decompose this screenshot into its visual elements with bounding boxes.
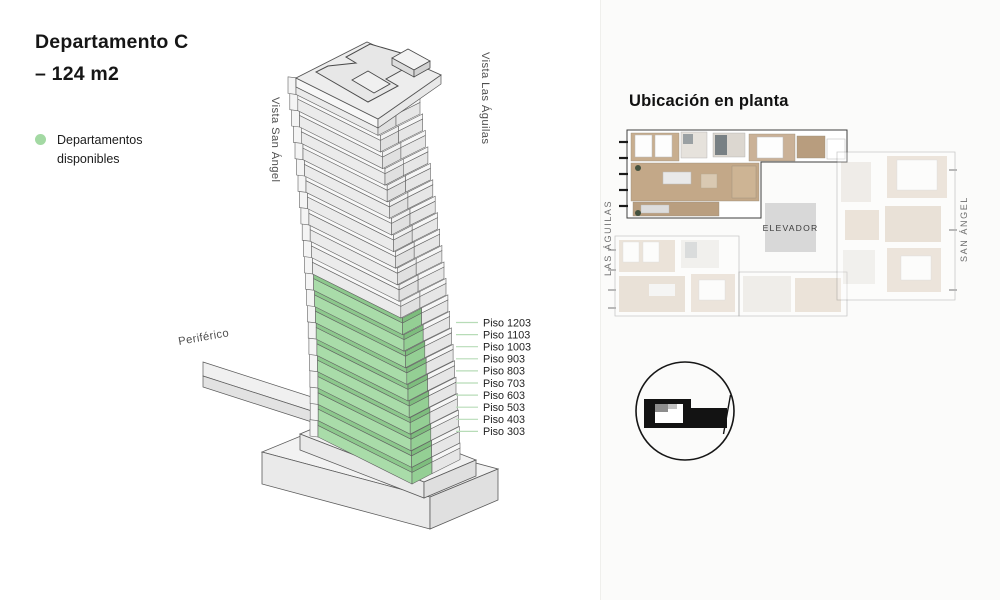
floor-label-piso-1203[interactable]: Piso 1203 xyxy=(483,317,531,329)
building-floor-piso-1003-endcap xyxy=(308,305,316,323)
elevator-label: ELEVADOR xyxy=(763,223,819,233)
unit-c-shade xyxy=(668,404,677,409)
plan-room xyxy=(843,250,875,284)
floor-label-piso-1103[interactable]: Piso 1103 xyxy=(483,329,530,341)
plan-street-right: SAN ÁNGEL xyxy=(959,192,969,262)
building-pane: Departamento C – 124 m2 Departamentos di… xyxy=(0,0,600,600)
plan-unit-faded-right xyxy=(837,152,957,300)
floor-label-piso-503[interactable]: Piso 503 xyxy=(483,402,525,414)
kitchen-island xyxy=(649,284,675,296)
shower xyxy=(715,135,727,155)
building-floor-upper-24-endcap xyxy=(288,77,296,95)
building-floor-piso-503-endcap xyxy=(310,387,318,405)
building-floor-piso-1103-endcap xyxy=(307,289,315,307)
floor-label-piso-303[interactable]: Piso 303 xyxy=(483,426,525,438)
floor-label-piso-1003[interactable]: Piso 1003 xyxy=(483,342,531,354)
building-floor-upper-19-endcap xyxy=(297,158,305,176)
shower xyxy=(685,242,697,258)
building-floor-upper-16-endcap xyxy=(301,207,309,225)
building-floor-upper-14-endcap xyxy=(303,240,311,258)
bed xyxy=(757,137,783,158)
building-floor-upper-21-endcap xyxy=(293,126,301,144)
table xyxy=(701,174,717,188)
building-floor-piso-303-endcap xyxy=(310,419,318,437)
plan-room xyxy=(795,278,841,312)
building-floor-upper-22-endcap xyxy=(292,109,300,127)
plan-heading: Ubicación en planta xyxy=(629,92,789,111)
floor-label-piso-403[interactable]: Piso 403 xyxy=(483,414,525,426)
plan-room xyxy=(743,276,791,312)
building-floor-upper-20-endcap xyxy=(295,142,303,160)
street-label-front: Periférico xyxy=(177,327,230,348)
plan-pane: Ubicación en planta xyxy=(600,0,1000,600)
floor-label-piso-803[interactable]: Piso 803 xyxy=(483,366,525,378)
building-floor-piso-603-endcap xyxy=(310,371,318,389)
plant-icon xyxy=(635,210,641,216)
building-illustration: Vista San Ángel Vista Las Águilas Perifé… xyxy=(0,0,600,600)
floor-label-piso-903[interactable]: Piso 903 xyxy=(483,354,525,366)
floor-label-piso-703[interactable]: Piso 703 xyxy=(483,378,525,390)
bed xyxy=(635,135,652,157)
apartment-viewer: Departamento C – 124 m2 Departamentos di… xyxy=(0,0,1000,600)
location-indicator xyxy=(625,352,750,472)
unit-c-shade xyxy=(655,404,668,412)
road-periferico xyxy=(203,362,318,424)
plan-unit-faded-bottom-center xyxy=(739,272,847,316)
bed xyxy=(643,242,659,262)
building-floor-piso-1203-endcap xyxy=(306,273,314,291)
plant-icon xyxy=(635,165,641,171)
kitchen-island xyxy=(663,172,691,184)
shower xyxy=(683,134,693,144)
plan-room xyxy=(845,210,879,240)
bed xyxy=(897,160,937,190)
building-floor-upper-18-endcap xyxy=(298,175,306,193)
plan-room xyxy=(885,206,941,242)
bed xyxy=(901,256,931,280)
building-floor-upper-15-endcap xyxy=(302,224,310,242)
plan-room xyxy=(732,166,756,198)
bed xyxy=(655,135,672,157)
street-label-left: Vista San Ángel xyxy=(269,97,282,182)
floor-callouts: Piso 1203Piso 1103Piso 1003Piso 903Piso … xyxy=(456,317,531,438)
bed xyxy=(699,280,725,300)
building-floor-piso-803-endcap xyxy=(309,338,317,356)
building-floor-upper-13-endcap xyxy=(305,256,313,274)
plan-room xyxy=(797,136,825,158)
street-label-right: Vista Las Águilas xyxy=(479,52,492,144)
building-floor-upper-23-endcap xyxy=(290,93,298,111)
plan-room xyxy=(841,162,871,202)
building-floor-piso-903-endcap xyxy=(308,322,316,340)
floor-label-piso-603[interactable]: Piso 603 xyxy=(483,390,525,402)
sofa xyxy=(641,205,669,213)
floorplan: ELEVADOR xyxy=(601,120,1000,335)
building-floor-piso-703-endcap xyxy=(310,354,318,372)
plan-street-left: LAS ÁGUILAS xyxy=(603,196,613,276)
bed xyxy=(623,242,639,262)
plan-unit-faded-bottom-left xyxy=(608,236,739,316)
building-floor-upper-17-endcap xyxy=(300,191,308,209)
building-floor-piso-403-endcap xyxy=(310,403,318,421)
tower-floors xyxy=(288,77,460,484)
